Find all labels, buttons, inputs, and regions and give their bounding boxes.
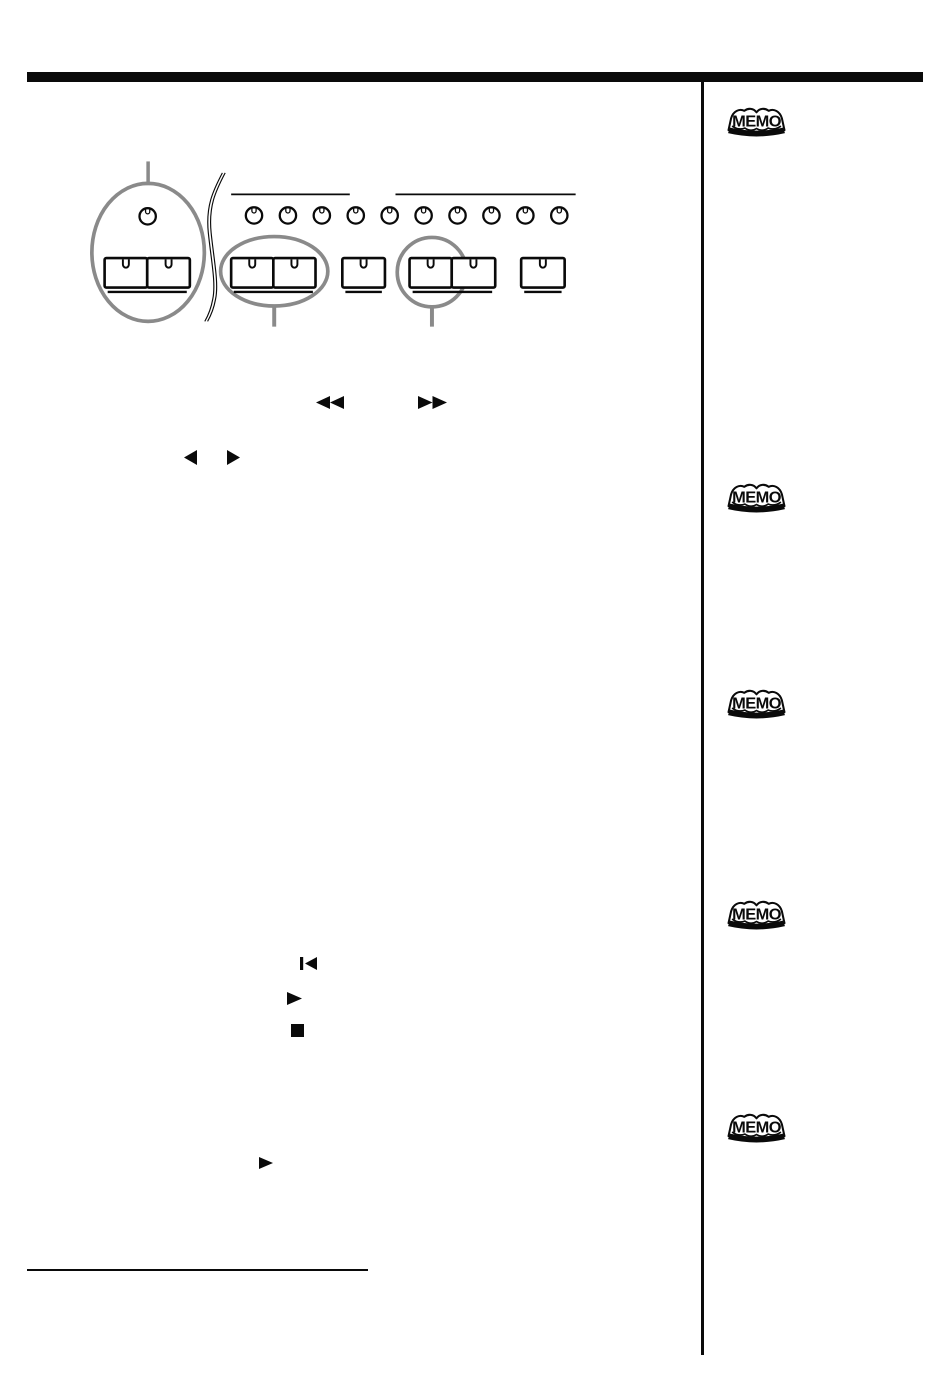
rewind-icon bbox=[316, 396, 344, 409]
button-icon bbox=[273, 258, 315, 287]
stop-icon bbox=[291, 1024, 304, 1037]
callout-ellipse-left-section bbox=[92, 183, 204, 321]
knob-icon bbox=[551, 207, 567, 223]
memo-icon: MEMO bbox=[727, 482, 787, 516]
fast-forward-icon bbox=[418, 396, 447, 409]
button-icon bbox=[521, 258, 565, 287]
page-top-rule bbox=[27, 72, 923, 82]
memo-label: MEMO bbox=[732, 696, 782, 713]
knob-icon bbox=[314, 207, 330, 223]
button-icon bbox=[342, 258, 385, 287]
manual-page: MEMO MEMO MEMO MEMO MEMO bbox=[0, 0, 950, 1379]
knob-icon bbox=[517, 207, 533, 223]
button-icon bbox=[147, 258, 190, 287]
knob-icon bbox=[483, 207, 499, 223]
knob-icon bbox=[449, 207, 465, 223]
memo-label: MEMO bbox=[732, 907, 782, 924]
footnote-rule bbox=[27, 1269, 368, 1271]
button-icon bbox=[452, 258, 496, 287]
memo-icon: MEMO bbox=[727, 688, 787, 722]
memo-icon: MEMO bbox=[727, 899, 787, 933]
play-icon bbox=[287, 992, 302, 1005]
knob-icon bbox=[415, 207, 431, 223]
cursor-right-icon bbox=[227, 450, 240, 465]
memo-icon: MEMO bbox=[727, 106, 787, 140]
panel-buttons bbox=[105, 258, 565, 287]
callout-annotations bbox=[92, 161, 467, 326]
knob-icon bbox=[246, 207, 262, 223]
memo-icon: MEMO bbox=[727, 1112, 787, 1146]
memo-label: MEMO bbox=[732, 1120, 782, 1137]
sidebar-divider-line bbox=[701, 82, 704, 1355]
panel-break-squiggle bbox=[205, 173, 225, 322]
panel-diagram bbox=[80, 150, 660, 360]
button-icon bbox=[231, 258, 273, 287]
memo-label: MEMO bbox=[732, 114, 782, 131]
button-icon bbox=[105, 258, 148, 287]
skip-to-start-icon bbox=[300, 957, 317, 970]
knob-icon bbox=[139, 208, 155, 224]
memo-label: MEMO bbox=[732, 490, 782, 507]
cursor-left-icon bbox=[184, 450, 197, 465]
knob-icon bbox=[382, 207, 398, 223]
play-icon-2 bbox=[259, 1157, 273, 1169]
button-icon bbox=[410, 258, 452, 287]
knob-icon bbox=[280, 207, 296, 223]
knob-icon bbox=[348, 207, 364, 223]
